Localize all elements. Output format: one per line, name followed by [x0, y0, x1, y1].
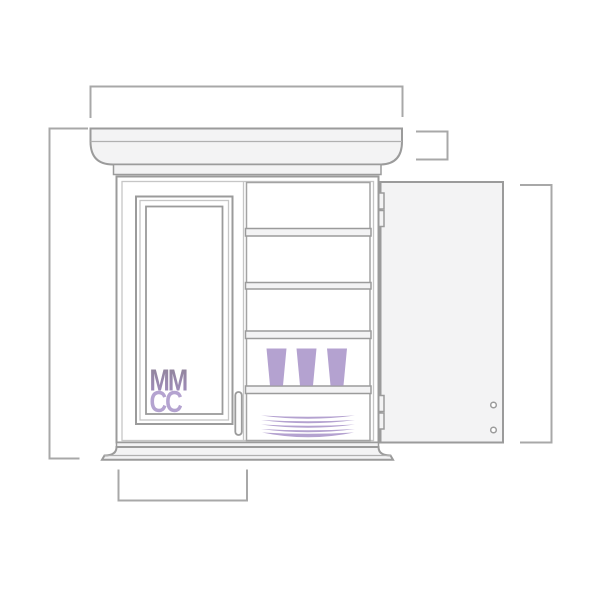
crown-frieze: [114, 165, 382, 175]
left-door: MM CC: [136, 197, 242, 436]
open-door-panel: [381, 182, 504, 443]
cup-icon: [267, 349, 287, 386]
shelf-band: [246, 283, 372, 290]
open-door-height-bracket: [520, 185, 552, 443]
overall-width-bracket: [91, 87, 403, 119]
shelf-band: [246, 331, 372, 339]
door-width-bracket: [119, 470, 248, 501]
brand-logo-cc: CC: [150, 384, 183, 418]
illustration-canvas: MM CC: [0, 0, 600, 600]
base-molding: [102, 443, 393, 460]
cabinet-dimension-illustration: MM CC: [0, 0, 600, 600]
open-door: [378, 182, 504, 443]
crown-profile: [91, 129, 403, 165]
cup-icon: [327, 349, 347, 386]
shelf-compartment: [246, 183, 372, 441]
shelf-band: [246, 229, 372, 237]
crown-molding: [91, 129, 403, 175]
cup-icon: [297, 349, 317, 386]
base-profile: [102, 447, 393, 460]
crown-height-bracket: [416, 132, 448, 160]
shelf-band: [246, 386, 372, 394]
door-knob-icon: [491, 402, 497, 408]
door-handle: [235, 392, 242, 435]
door-knob-icon: [491, 427, 497, 433]
cups-row: [267, 349, 348, 386]
overall-height-bracket: [50, 129, 89, 459]
compartment-opening: [247, 183, 371, 441]
